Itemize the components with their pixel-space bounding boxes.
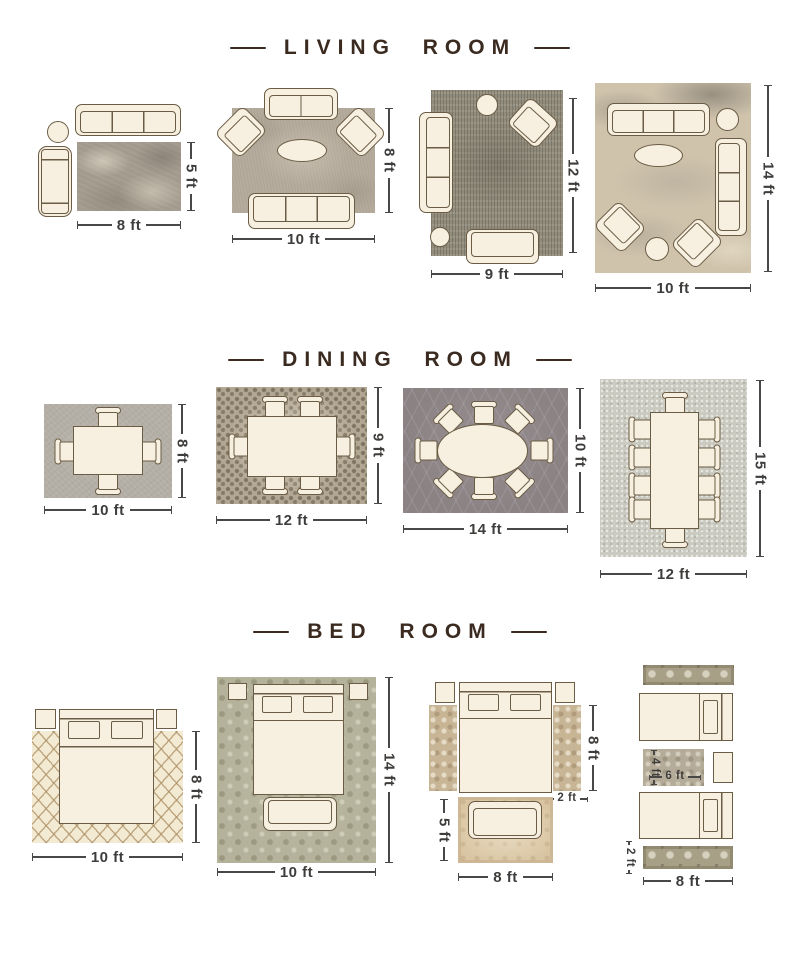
oval-coffee-table [277, 139, 327, 162]
rug-height-dimension: 8 ft [174, 404, 190, 498]
runner-rug [643, 846, 733, 869]
nightstand [35, 709, 56, 729]
nightstand [435, 682, 455, 703]
nightstand [156, 709, 177, 729]
rug-width-dimension: 10 ft [217, 864, 376, 880]
sofa [264, 88, 338, 120]
rug-height-dimension: 14 ft [760, 85, 776, 272]
twin-bed [639, 693, 733, 741]
dining-chair [629, 445, 652, 471]
dining-chair [629, 473, 652, 499]
area-rug [77, 142, 181, 211]
oval-coffee-table [634, 144, 683, 167]
section-header-bed-room: BED ROOM [0, 620, 800, 644]
dining-chair [698, 445, 721, 471]
rug-width-dimension: 12 ft [600, 566, 747, 582]
dining-chair [698, 497, 721, 523]
chaise [38, 146, 72, 217]
title-dash-icon [228, 359, 264, 362]
bench [468, 801, 542, 839]
rug-height-dimension: 12 ft [565, 98, 581, 253]
bench [263, 797, 337, 831]
dining-chair [531, 438, 554, 464]
sofa [607, 103, 710, 136]
nightstand [555, 682, 575, 703]
oval-dining-table [437, 424, 528, 478]
dining-chair [471, 477, 497, 500]
rug-height-dimension: 5 ft [436, 799, 452, 861]
round-side-table [716, 108, 739, 131]
rug-width-dimension: 12 ft [216, 512, 367, 528]
rug-height-dimension: 14 ft [381, 677, 397, 863]
round-side-table [47, 121, 69, 143]
dining-chair [415, 438, 438, 464]
rug-height-dimension: 15 ft [752, 380, 768, 557]
section-header-dining-room: DINING ROOM [0, 348, 800, 372]
dining-table [73, 426, 143, 475]
small-rug-width-dimension: 6 ft [649, 769, 701, 785]
sofa [715, 138, 747, 236]
sofa [248, 193, 355, 229]
title-dash-icon [511, 631, 547, 634]
title-dash-icon [536, 359, 572, 362]
bed [59, 709, 154, 824]
dining-table [247, 416, 337, 477]
rug-size-guide-infographic: LIVING ROOM 5 ft 8 ft 8 ft 10 ft 12 ft 9… [0, 0, 800, 978]
dining-chair [698, 417, 721, 443]
dining-chair [629, 417, 652, 443]
rug-height-dimension: 10 ft [572, 388, 588, 513]
bed [253, 684, 344, 795]
dining-table [650, 412, 699, 529]
rug-width-dimension: 14 ft [403, 521, 568, 537]
twin-bed [639, 792, 733, 839]
section-title: DINING ROOM [282, 348, 518, 372]
runner-width-dimension: 8 ft [643, 873, 733, 889]
rug-height-dimension: 8 ft [381, 108, 397, 213]
rug-height-dimension: 5 ft [183, 142, 199, 211]
runner-height-dimension: 8 ft [585, 705, 601, 791]
rug-width-dimension: 10 ft [44, 502, 172, 518]
rug-width-dimension: 10 ft [232, 231, 375, 247]
rug-height-dimension: 8 ft [188, 731, 204, 843]
rug-width-dimension: 9 ft [431, 266, 563, 282]
nightstand [713, 752, 733, 783]
round-side-table [476, 94, 498, 116]
section-header-living-room: LIVING ROOM [0, 36, 800, 60]
runner-rug [429, 705, 457, 791]
nightstand [349, 683, 368, 700]
section-title: LIVING ROOM [284, 36, 516, 60]
rug-height-dimension: 9 ft [370, 387, 386, 504]
dining-chair [698, 473, 721, 499]
runner-rug [553, 705, 581, 791]
sofa [75, 104, 181, 136]
dining-chair [95, 472, 121, 495]
round-pouf [645, 237, 669, 261]
section-title: BED ROOM [307, 620, 493, 644]
title-dash-icon [534, 47, 570, 50]
title-dash-icon [253, 631, 289, 634]
dining-chair [629, 497, 652, 523]
nightstand [228, 683, 247, 700]
dining-chair [471, 401, 497, 424]
bed [459, 682, 552, 793]
rug-width-dimension: 8 ft [458, 869, 553, 885]
rug-width-dimension: 10 ft [32, 849, 183, 865]
sofa [419, 112, 453, 213]
rug-width-dimension: 10 ft [595, 280, 751, 296]
round-pouf [430, 227, 450, 247]
runner-height-dimension: 2 ft [621, 841, 637, 874]
title-dash-icon [230, 47, 266, 50]
loveseat [466, 229, 539, 264]
runner-rug [643, 665, 734, 685]
rug-width-dimension: 8 ft [77, 217, 181, 233]
